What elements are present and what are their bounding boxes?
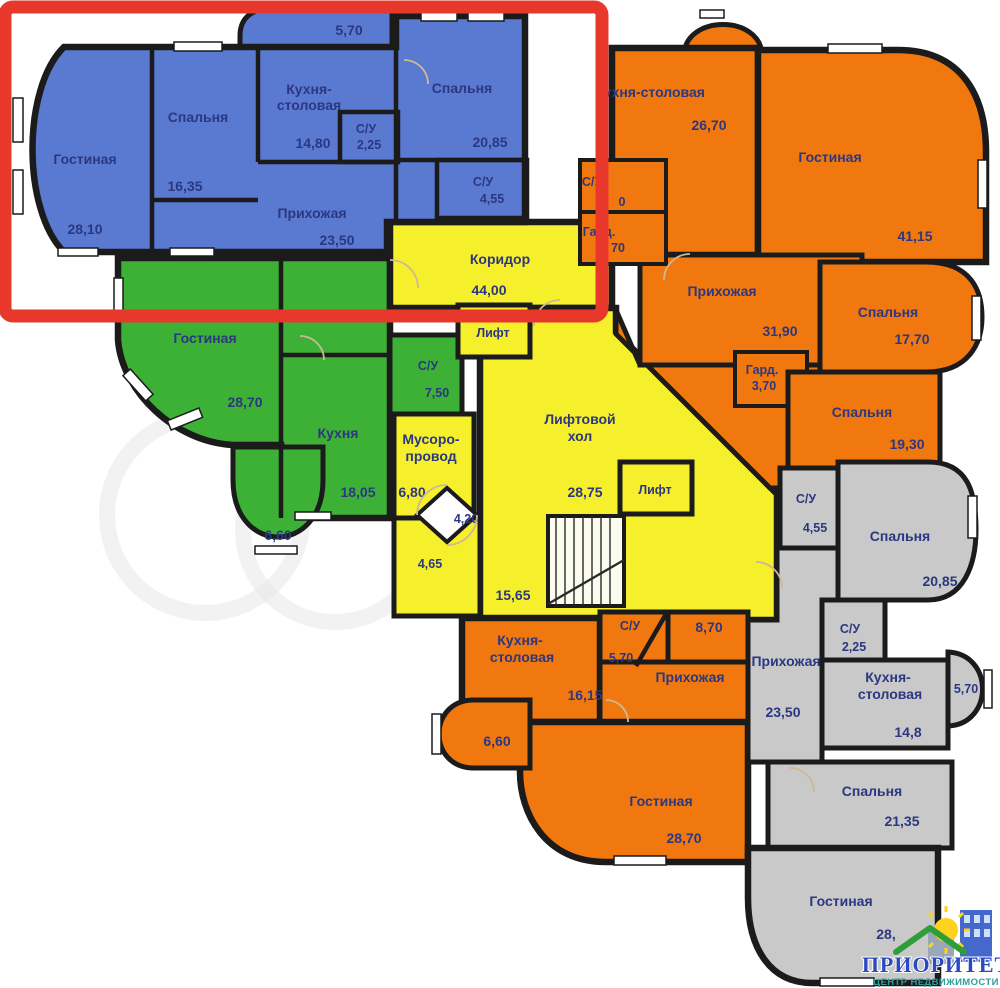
area-label: 28,75 [567, 484, 602, 500]
room-label-line2: столовая [277, 97, 341, 113]
area-label: 7,50 [425, 386, 449, 400]
window [700, 10, 724, 18]
room-label-line2: хол [568, 428, 593, 444]
window [820, 978, 874, 986]
window [170, 248, 214, 256]
window [114, 278, 123, 312]
area-label: 3,70 [752, 379, 776, 393]
room-label: Спальня [870, 528, 930, 544]
room-label: Гостиная [629, 793, 692, 809]
room-label: Прихожая [687, 283, 756, 299]
room-label: Гостиная [798, 149, 861, 165]
area-label: 5,70 [609, 651, 633, 665]
room-label: Спальня [432, 80, 492, 96]
area-label: 5,70 [954, 682, 978, 696]
area-label: 4,20 [454, 512, 478, 526]
room-label: Кухня- [286, 81, 332, 97]
room-label: С/У [356, 122, 377, 136]
room-wc-green [390, 335, 462, 415]
room-label: Гостиная [809, 893, 872, 909]
window [174, 42, 222, 51]
area-label: 5,70 [335, 22, 362, 38]
area-label: 28, [876, 926, 895, 942]
window [614, 856, 666, 865]
room-label-line2: столовая [858, 686, 922, 702]
room-bedroom-2 [788, 372, 940, 468]
apartment-orange-bottom: Кухня- столовая 16,15 С/У 5,70 8,70 Прих… [439, 612, 748, 862]
room-label: Лифтовой [544, 411, 615, 427]
stair-shaft [548, 516, 624, 606]
area-label: 16,15 [567, 687, 602, 703]
area-label: 20,85 [472, 134, 507, 150]
area-label: 19,30 [889, 436, 924, 452]
area-label: 14,80 [295, 135, 330, 151]
room-label: Кухня-столовая [595, 84, 705, 100]
area-label: 18,05 [340, 484, 375, 500]
room-wc-1 [780, 468, 838, 548]
area-label: 21,35 [884, 813, 919, 829]
area-label: 2,25 [357, 138, 381, 152]
logo-title: ПРИОРИТЕТ [862, 952, 1000, 977]
area-label: 20,85 [922, 573, 957, 589]
apartment-gray: С/У 4,55 Спальня 20,85 С/У 2,25 Прихожая… [748, 462, 983, 983]
area-label: 17,70 [894, 331, 929, 347]
area-label: 44,00 [471, 282, 506, 298]
room-label: Спальня [858, 304, 918, 320]
logo-building-window [974, 915, 980, 923]
window [972, 296, 981, 340]
room-bedroom-2 [768, 762, 952, 848]
area-label: 14,8 [894, 724, 921, 740]
area-label: 15,65 [495, 587, 530, 603]
logo-building-window [984, 915, 990, 923]
area-label: 28,70 [227, 394, 262, 410]
area-label: 23,50 [319, 232, 354, 248]
window [984, 670, 992, 708]
room-label: Гард. [746, 363, 779, 377]
logo-building-window [984, 929, 990, 937]
window [13, 170, 23, 214]
room-label: Гостиная [53, 151, 116, 167]
area-label: 41,15 [897, 228, 932, 244]
area-label: 0 [619, 195, 626, 209]
window [295, 512, 331, 520]
area-label: 2,25 [842, 640, 866, 654]
staircase [548, 516, 624, 606]
balcony [240, 8, 392, 47]
area-label: 16,35 [167, 178, 202, 194]
area-label: 28,10 [67, 221, 102, 237]
area-label: 8,70 [695, 619, 722, 635]
window [255, 546, 297, 554]
room-label: Гостиная [173, 330, 236, 346]
window [432, 714, 441, 754]
area-label: 26,70 [691, 117, 726, 133]
room-label-line2: провод [405, 448, 456, 464]
room-label: С/У [840, 622, 861, 636]
logo-building-window [964, 915, 970, 923]
room-living [758, 50, 986, 262]
room-label: С/У [620, 619, 641, 633]
window [828, 44, 882, 53]
room-label: Лифт [476, 326, 509, 340]
area-label: 28,70 [666, 830, 701, 846]
room-label: Спальня [832, 404, 892, 420]
logo-building-window [974, 929, 980, 937]
window [968, 496, 977, 538]
balcony-green [233, 447, 323, 537]
room-living [520, 722, 748, 862]
room-label: Мусоро- [402, 431, 460, 447]
room-label: Спальня [842, 783, 902, 799]
room-label: Кухня [318, 425, 359, 441]
area-label: 6,60 [264, 527, 291, 543]
room-label: Кухня- [865, 669, 911, 685]
room-label: С/У [473, 175, 494, 189]
room-label: Коридор [470, 251, 530, 267]
area-label: 4,55 [480, 192, 504, 206]
room-label: Спальня [168, 109, 228, 125]
apartment-blue: Гостиная 28,10 Спальня 16,35 Кухня- стол… [33, 8, 528, 252]
area-label: 23,50 [765, 704, 800, 720]
area-label: 4,65 [418, 557, 442, 571]
area-label: 6,60 [483, 733, 510, 749]
area-label: 4,55 [803, 521, 827, 535]
room-label: Прихожая [751, 653, 820, 669]
room-label: Прихожая [277, 205, 346, 221]
floor-plan-svg: Гостиная 28,70 С/У 7,50 Кухня 18,05 6,60… [0, 0, 1000, 988]
room-label: Кухня- [497, 632, 543, 648]
floor-plan-screenshot: Гостиная 28,70 С/У 7,50 Кухня 18,05 6,60… [0, 0, 1000, 988]
window [13, 98, 23, 142]
room-label-line2: столовая [490, 649, 554, 665]
window [978, 160, 987, 208]
room-label: Прихожая [655, 669, 724, 685]
window [58, 248, 98, 256]
room-label: Лифт [638, 483, 671, 497]
room-label: С/У [796, 492, 817, 506]
area-label: 31,90 [762, 323, 797, 339]
logo-subtitle: ЦЕНТР НЕДВИЖИМОСТИ [873, 977, 999, 988]
room-label: С/У [418, 359, 439, 373]
area-label: 70 [611, 241, 625, 255]
